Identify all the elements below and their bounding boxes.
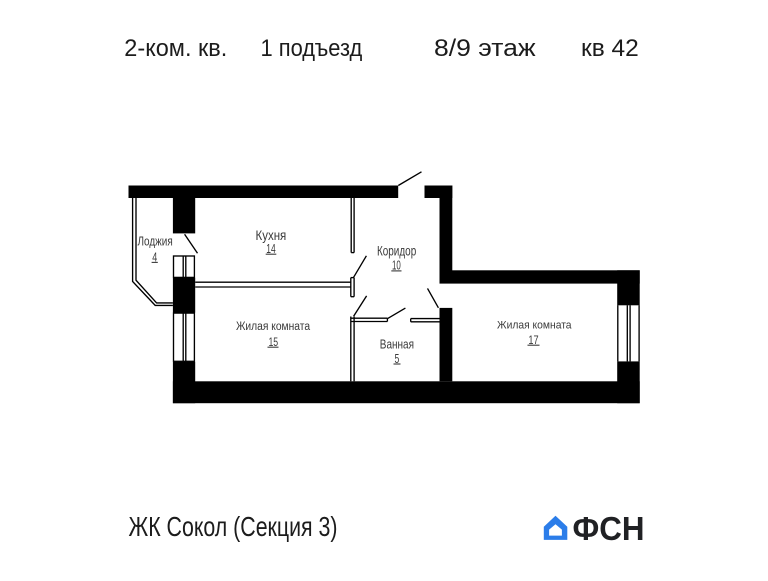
svg-text:8/9 этаж: 8/9 этаж — [434, 35, 536, 62]
svg-text:10: 10 — [392, 257, 401, 272]
svg-text:кв 42: кв 42 — [581, 35, 639, 62]
svg-text:Коридор: Коридор — [377, 243, 416, 258]
svg-text:2-ком. кв.: 2-ком. кв. — [124, 35, 227, 62]
svg-text:1 подъезд: 1 подъезд — [261, 35, 363, 62]
svg-text:ФСН: ФСН — [573, 510, 645, 547]
svg-text:Ванная: Ванная — [380, 337, 414, 351]
svg-text:Жилая комната: Жилая комната — [497, 319, 572, 331]
svg-text:Лоджия: Лоджия — [138, 235, 173, 249]
svg-text:Жилая комната: Жилая комната — [236, 321, 311, 333]
svg-text:ЖК Сокол (Секция 3): ЖК Сокол (Секция 3) — [129, 511, 338, 542]
